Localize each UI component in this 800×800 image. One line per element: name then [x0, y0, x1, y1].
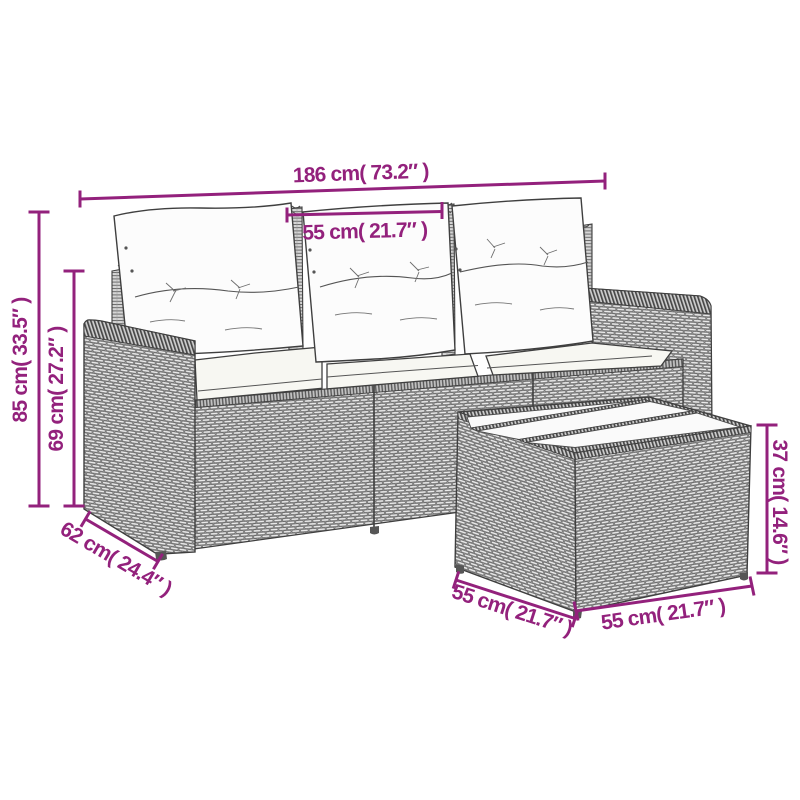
- svg-text:37 cm( 14.6″ ): 37 cm( 14.6″ ): [768, 440, 791, 565]
- svg-text:55 cm( 21.7″ ): 55 cm( 21.7″ ): [302, 218, 427, 244]
- svg-text:69 cm( 27.2″ ): 69 cm( 27.2″ ): [45, 327, 68, 452]
- svg-text:85 cm( 33.5″ ): 85 cm( 33.5″ ): [9, 298, 32, 423]
- svg-text:186 cm( 73.2″ ): 186 cm( 73.2″ ): [293, 160, 430, 188]
